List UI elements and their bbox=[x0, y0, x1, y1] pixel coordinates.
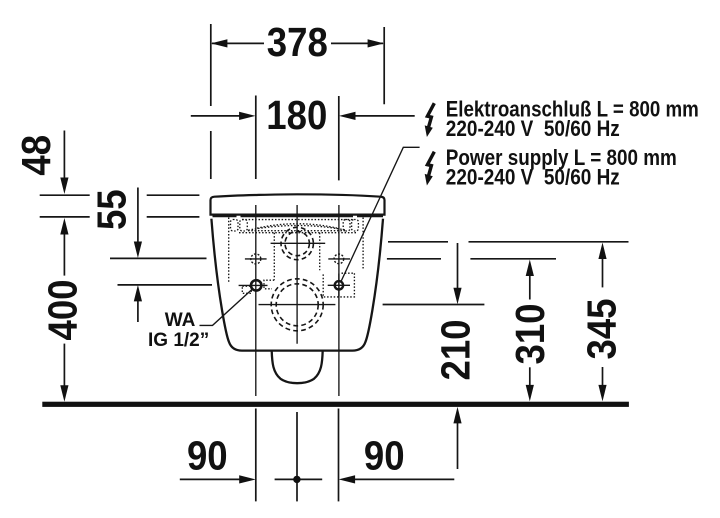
svg-text:WA: WA bbox=[165, 310, 196, 331]
svg-text:400: 400 bbox=[40, 280, 86, 341]
svg-text:90: 90 bbox=[364, 433, 405, 479]
svg-text:220-240 V 50/60 Hz: 220-240 V 50/60 Hz bbox=[446, 165, 620, 190]
svg-text:180: 180 bbox=[266, 92, 327, 138]
svg-text:220-240 V 50/60 Hz: 220-240 V 50/60 Hz bbox=[446, 116, 620, 141]
svg-text:55: 55 bbox=[89, 189, 135, 230]
svg-text:210: 210 bbox=[433, 320, 479, 381]
svg-text:90: 90 bbox=[187, 433, 228, 479]
svg-text:345: 345 bbox=[579, 299, 625, 360]
svg-text:IG 1/2”: IG 1/2” bbox=[148, 330, 209, 351]
svg-text:310: 310 bbox=[507, 304, 553, 365]
svg-text:378: 378 bbox=[267, 19, 328, 65]
svg-text:48: 48 bbox=[13, 135, 59, 176]
